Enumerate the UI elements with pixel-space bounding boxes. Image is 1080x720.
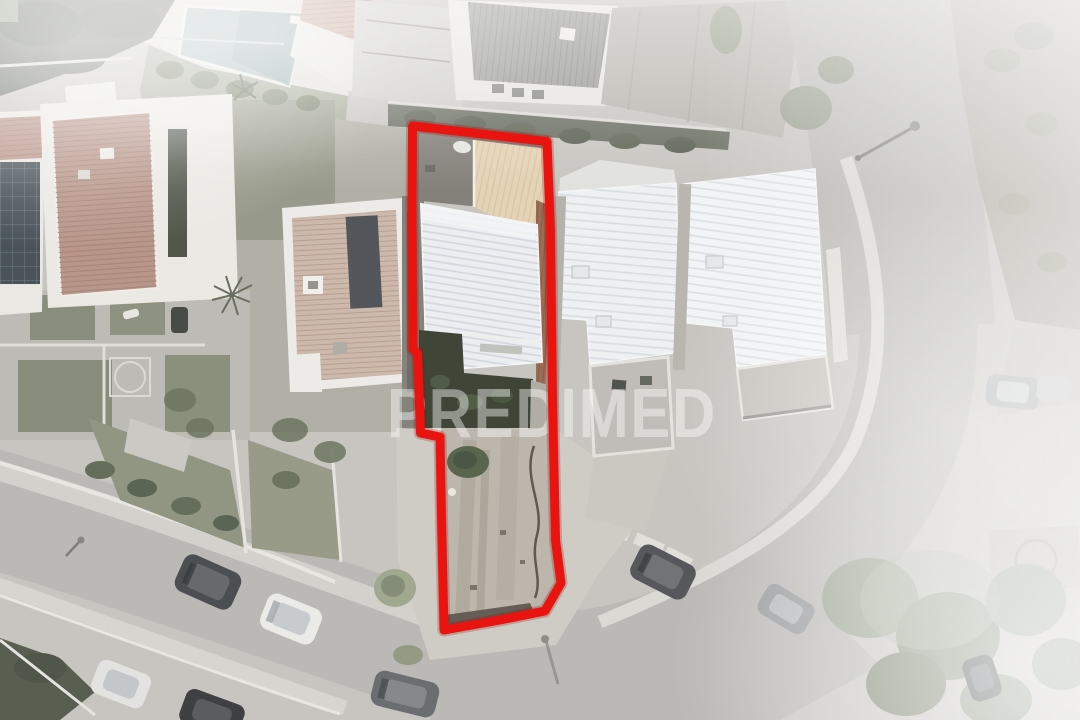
aerial-property-photo: PREDIMED — [0, 0, 1080, 720]
aerial-photo-canvas: PREDIMED — [0, 0, 1080, 720]
